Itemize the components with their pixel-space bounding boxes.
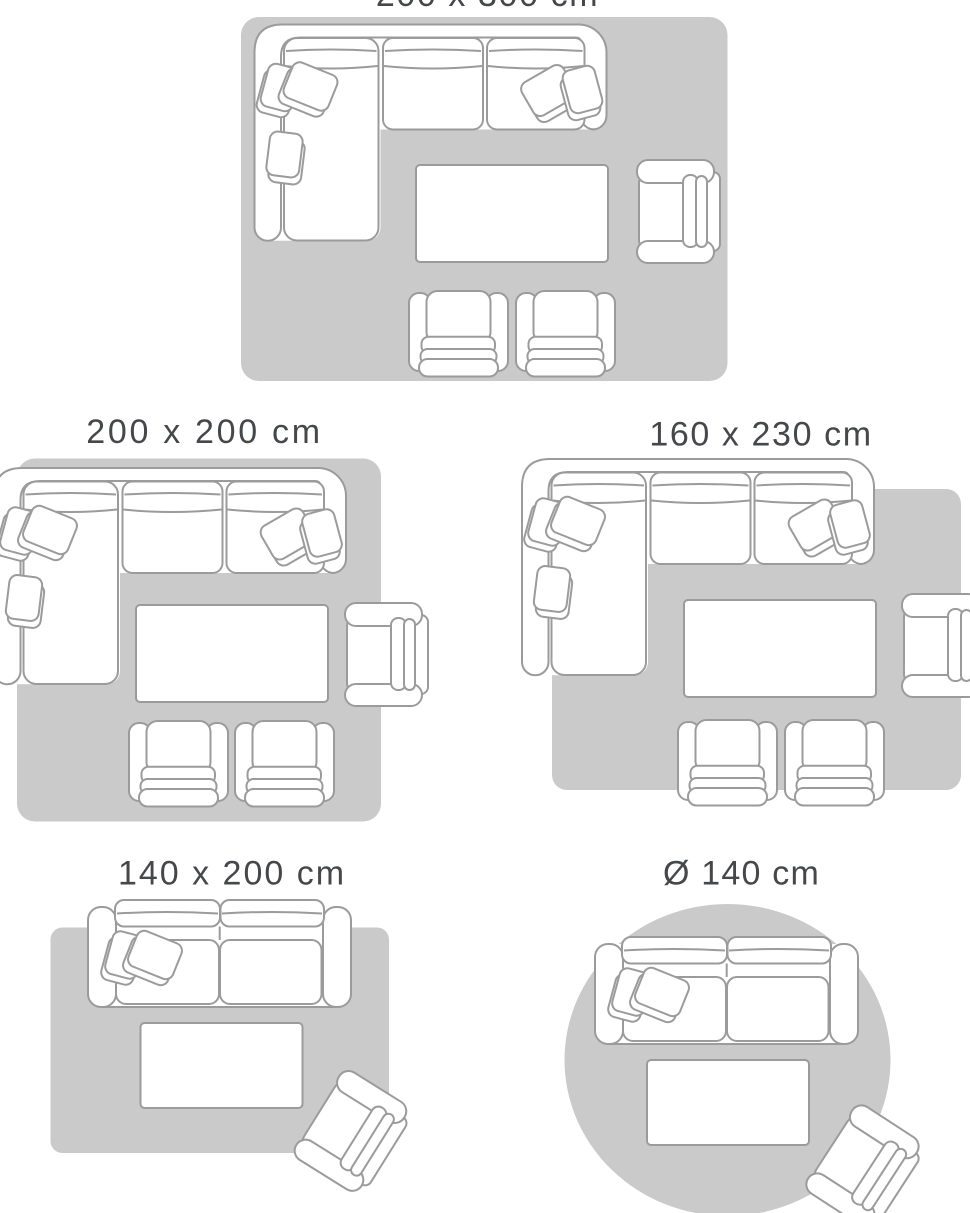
svg-text:160 x 230 cm: 160 x 230 cm [649,416,872,454]
svg-text:Ø 140 cm: Ø 140 cm [663,855,820,893]
svg-text:140 x 200 cm: 140 x 200 cm [118,855,346,893]
svg-text:200 x 200 cm: 200 x 200 cm [86,413,323,451]
svg-text:200 x 300 cm: 200 x 300 cm [376,0,599,14]
